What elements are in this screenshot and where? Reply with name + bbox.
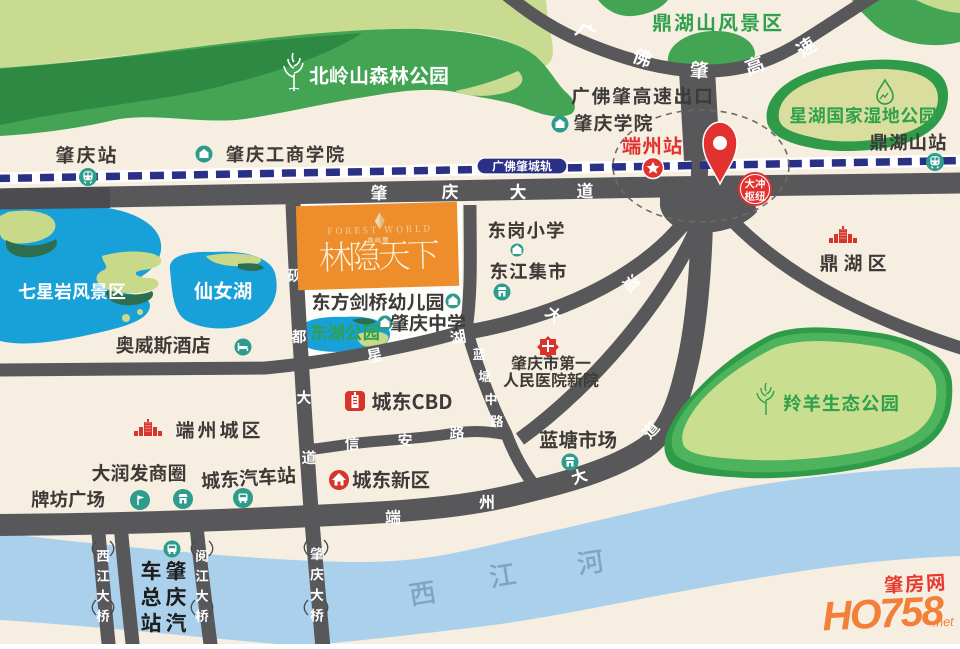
svg-text:.net: .net <box>932 615 954 630</box>
svg-text:HO758: HO758 <box>821 587 945 639</box>
